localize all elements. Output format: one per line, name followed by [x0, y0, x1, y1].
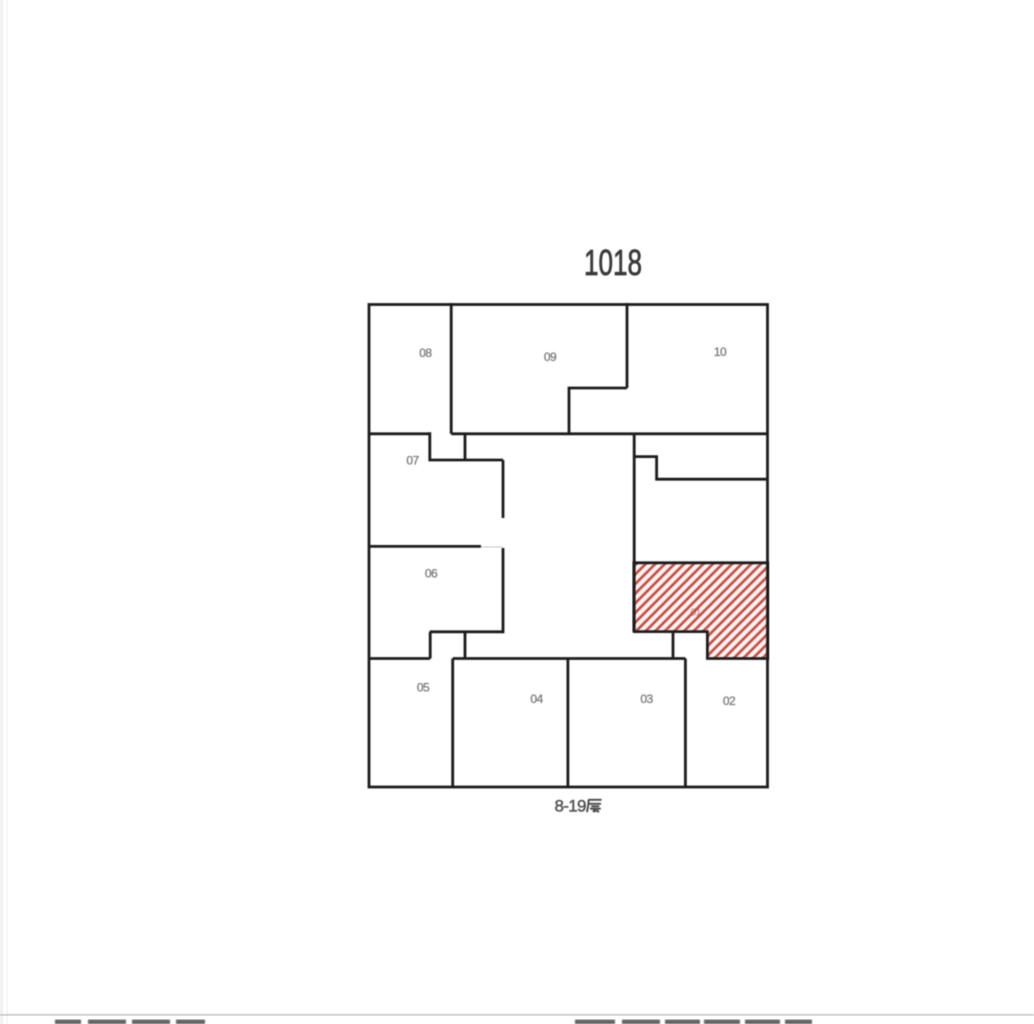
svg-text:07: 07 [406, 454, 419, 468]
svg-text:05: 05 [417, 681, 430, 695]
svg-text:02: 02 [723, 694, 736, 708]
svg-text:08: 08 [419, 346, 432, 360]
svg-text:10: 10 [714, 345, 727, 359]
svg-text:01: 01 [691, 608, 702, 619]
svg-text:03: 03 [640, 692, 653, 706]
svg-text:09: 09 [544, 350, 557, 364]
svg-text:04: 04 [530, 692, 543, 706]
svg-text:8-19: 8-19 [555, 797, 586, 816]
svg-text:1018: 1018 [584, 243, 642, 283]
svg-text:06: 06 [425, 567, 438, 581]
